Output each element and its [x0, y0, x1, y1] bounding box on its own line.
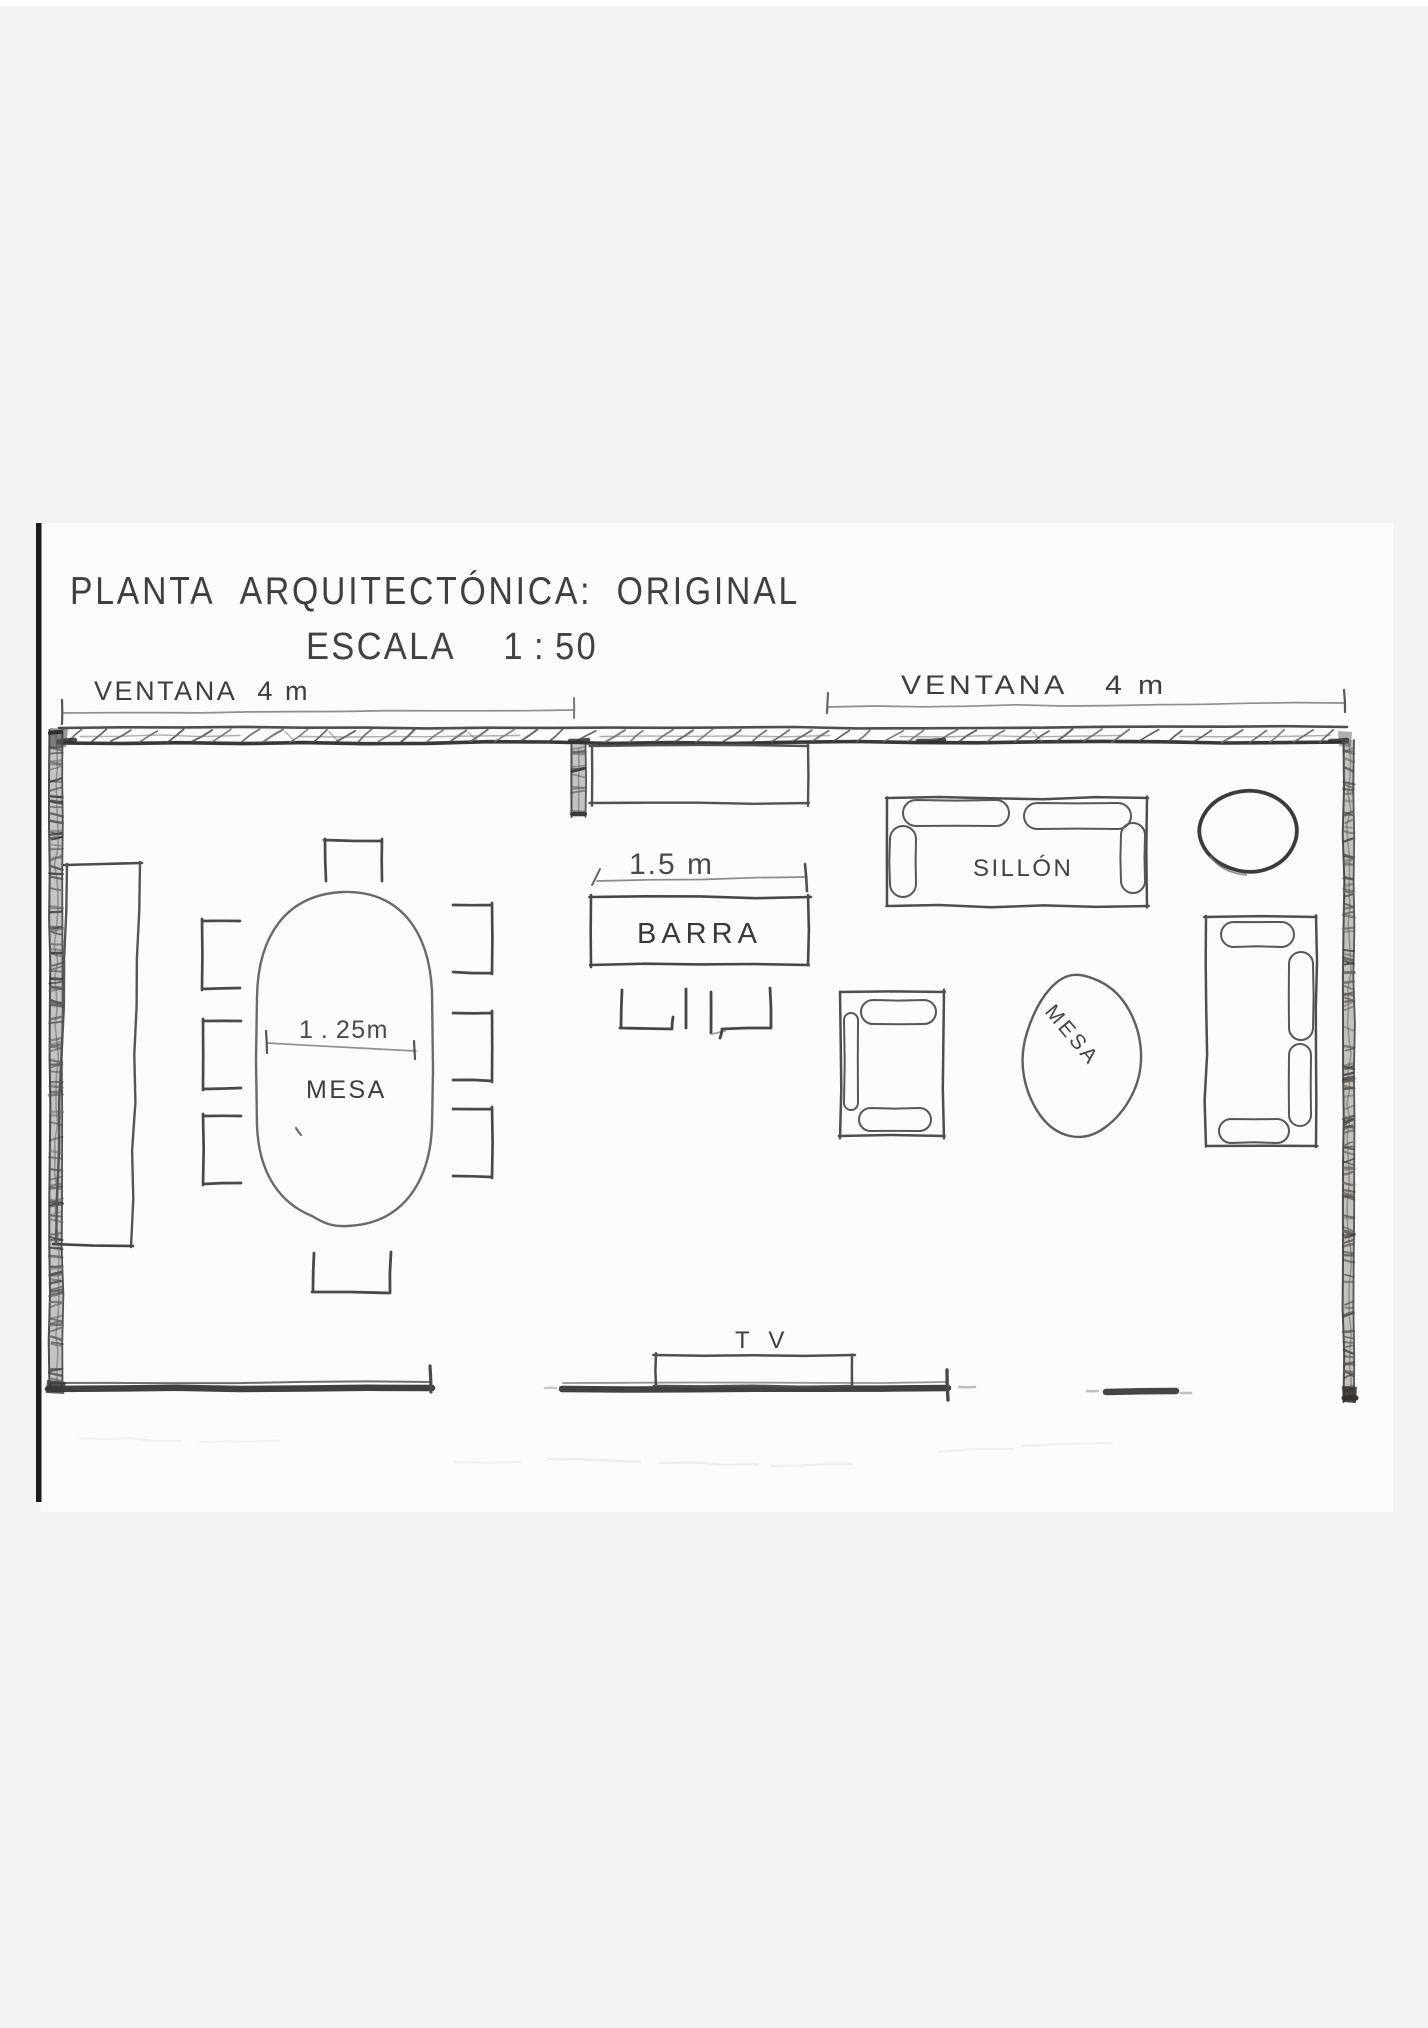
- svg-text:BARRA: BARRA: [637, 918, 762, 950]
- svg-text:PLANTA ARQUITECTÓNICA: ORIGI: PLANTA ARQUITECTÓNICA: ORIGINAL: [70, 570, 800, 613]
- svg-text:VENTANA 4 m: VENTANA 4 m: [94, 676, 310, 706]
- svg-text:1.5 m: 1.5 m: [629, 848, 714, 881]
- svg-text:MESA: MESA: [306, 1076, 387, 1104]
- svg-text:1 . 25m: 1 . 25m: [299, 1016, 389, 1044]
- svg-text:SILLÓN: SILLÓN: [973, 855, 1073, 882]
- svg-text:VENTANA 4 m: VENTANA 4 m: [901, 670, 1167, 700]
- svg-text:ESCALA 1 : 50: ESCALA 1 : 50: [306, 626, 598, 668]
- svg-text:T V: T V: [735, 1327, 790, 1354]
